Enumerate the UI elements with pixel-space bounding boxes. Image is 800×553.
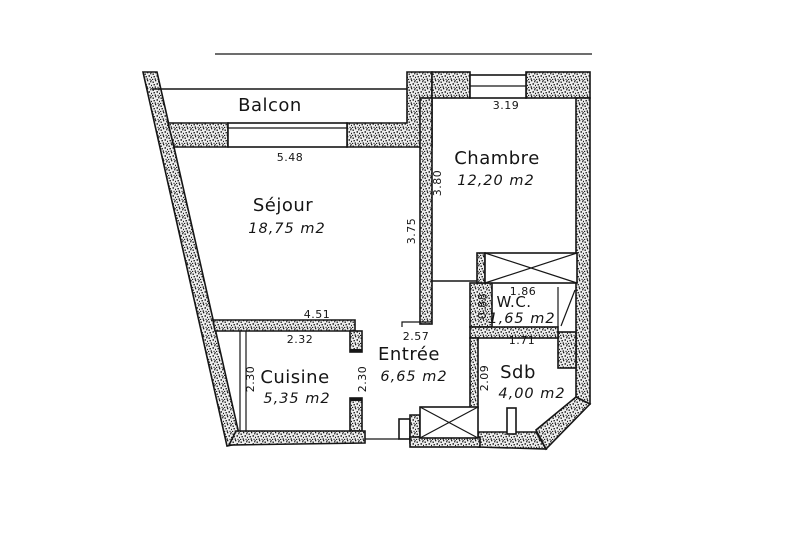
dim-wc-top: 1.86 [510, 285, 537, 298]
dim-cuisine-left: 2.30 [244, 366, 257, 393]
label-balcon: Balcon [238, 95, 302, 116]
cuisine-door-jamb-top [350, 349, 362, 352]
wall-bevel-corner [536, 397, 590, 449]
floor-plan: Balcon Séjour 18,75 m2 Chambre 12,20 m2 … [0, 0, 800, 553]
wall-bottom-cuisine [229, 431, 365, 445]
duct-lower [420, 407, 478, 438]
label-chambre: Chambre [454, 148, 540, 169]
wall-sejour-bottom [213, 320, 355, 331]
area-wc: 1,65 m2 [488, 311, 555, 327]
dim-sdb-top: 1.71 [509, 334, 536, 347]
area-chambre: 12,20 m2 [457, 173, 534, 189]
wall-sdb-step [558, 332, 576, 368]
dim-sejour-bottom: 4.51 [304, 308, 331, 321]
wall-cuisine-east-upper [350, 331, 362, 352]
wall-sdb-left [470, 338, 478, 408]
window-sejour [228, 123, 347, 147]
label-cuisine: Cuisine [260, 367, 329, 388]
wall-balcony-left [168, 123, 228, 147]
dim-sdb-left: 2.09 [478, 365, 491, 392]
area-sdb: 4,00 m2 [498, 386, 565, 402]
wall-chambre-top-right [526, 72, 590, 98]
label-entree: Entrée [378, 344, 440, 365]
dim-cuisine-top: 2.32 [287, 333, 314, 346]
area-entree: 6,65 m2 [380, 369, 447, 385]
area-cuisine: 5,35 m2 [263, 391, 330, 407]
wc-door-leaf [561, 290, 575, 326]
wall-notch [399, 419, 410, 439]
dim-chambre-top: 3.19 [493, 99, 520, 112]
wall-right [576, 98, 590, 404]
wall-cuisine-east-lower [350, 398, 362, 431]
dim-cuisine-right: 2.30 [356, 366, 369, 393]
cuisine-door-jamb-bottom [350, 398, 362, 401]
duct-upper [485, 253, 577, 283]
wall-chambre-top-left [432, 72, 470, 98]
sdb-door-jamb [507, 408, 516, 434]
area-sejour: 18,75 m2 [248, 221, 325, 237]
label-sdb: Sdb [500, 362, 536, 383]
dim-sejour-right: 3.75 [405, 218, 418, 245]
dim-sejour-top: 5.48 [277, 151, 304, 164]
dim-chambre-left: 3.80 [431, 170, 444, 197]
dim-entree-top: 2.57 [403, 330, 430, 343]
wall-duct-stub [477, 253, 485, 283]
floor-plan-svg: Balcon Séjour 18,75 m2 Chambre 12,20 m2 … [0, 0, 800, 553]
label-sejour: Séjour [253, 195, 313, 216]
dim-wc-left: 0.88 [476, 293, 489, 320]
wall-sejour-chambre [420, 98, 432, 324]
